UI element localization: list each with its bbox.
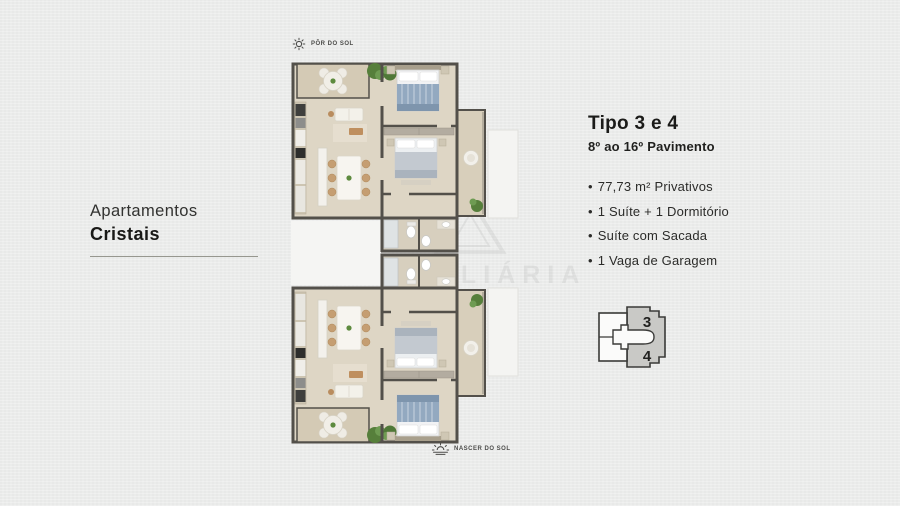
project-title-line1: Apartamentos [90,202,270,221]
feature-item: •77,73 m² Privativos [588,179,818,194]
bullet: • [588,253,593,268]
orientation-sunset: PÔR DO SOL [291,37,354,51]
bullet: • [588,228,593,243]
project-title-line2: Cristais [90,224,270,245]
bullet: • [588,179,593,194]
feature-item: •1 Vaga de Garagem [588,253,818,268]
key-plan-unit-3-label: 3 [643,314,651,331]
feature-item: •1 Suíte + 1 Dormitório [588,204,818,219]
sunset-icon [291,37,307,51]
page-canvas: IMOBILIÁRIA PÔR DO SOL NASCER DO SOL [0,0,900,506]
unit-info-panel: Tipo 3 e 4 8º ao 16º Pavimento •77,73 m²… [588,113,818,277]
feature-text: 1 Suíte + 1 Dormitório [598,204,729,219]
floor-plan-unit-3 [291,62,523,254]
bullet: • [588,204,593,219]
feature-list: •77,73 m² Privativos •1 Suíte + 1 Dormit… [588,179,818,268]
project-title: Apartamentos Cristais [90,202,270,257]
unit-floors-subtitle: 8º ao 16º Pavimento [588,139,818,154]
feature-item: •Suíte com Sacada [588,228,818,243]
feature-text: Suíte com Sacada [598,228,707,243]
orientation-sunrise: NASCER DO SOL [431,442,511,456]
title-underline [90,256,258,257]
sunrise-icon [431,442,450,456]
feature-text: 77,73 m² Privativos [598,179,713,194]
key-plan-unit-4-label: 4 [643,348,652,365]
unit-type-title: Tipo 3 e 4 [588,113,818,135]
key-plan: 3 4 [591,302,675,374]
sunset-label: PÔR DO SOL [311,41,354,47]
floor-plan-unit-4 [291,252,523,444]
sunrise-label: NASCER DO SOL [454,446,511,452]
feature-text: 1 Vaga de Garagem [598,253,718,268]
